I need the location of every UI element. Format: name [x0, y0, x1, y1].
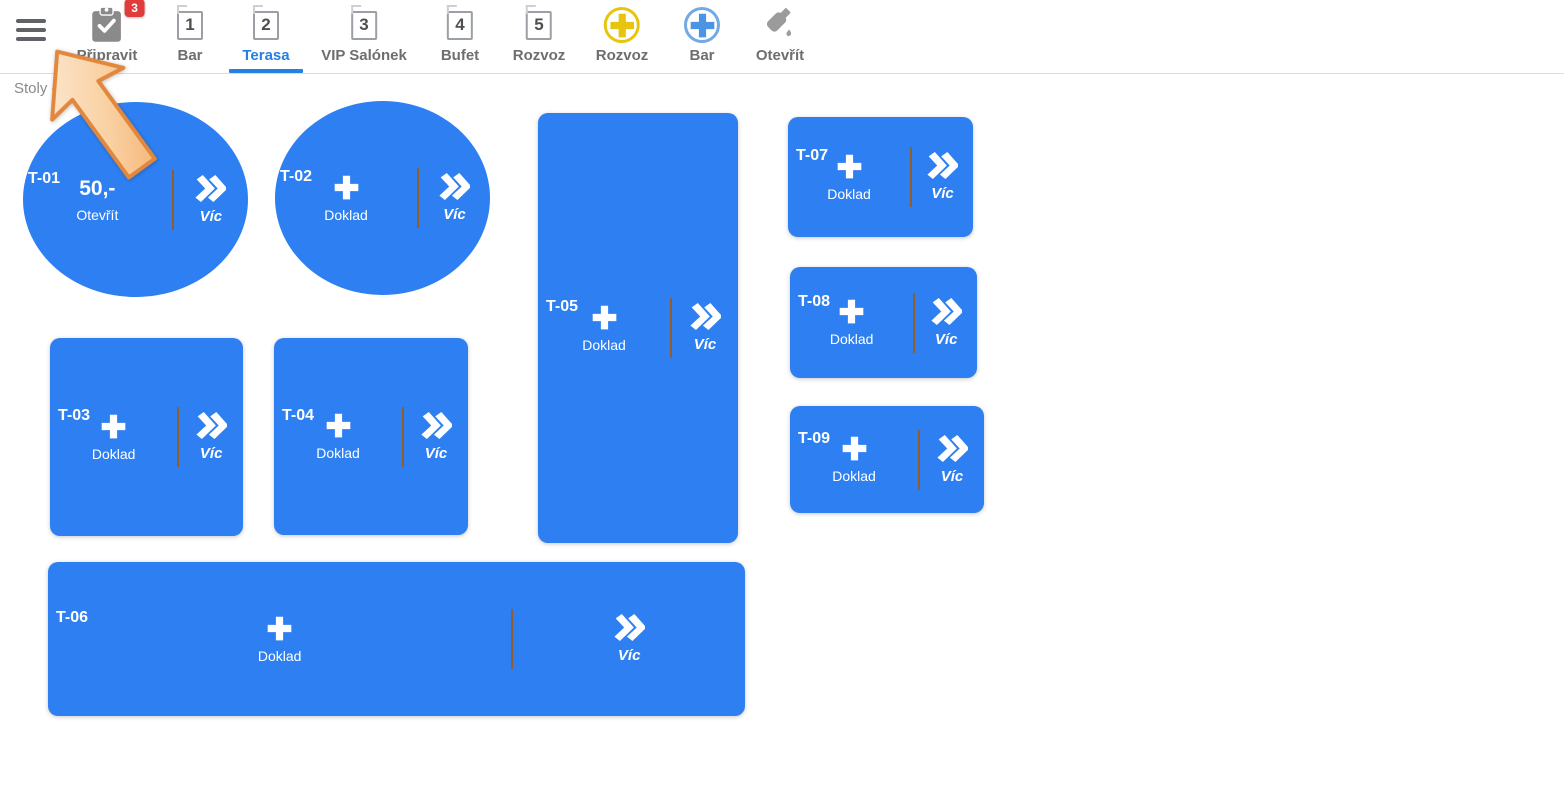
table-more-button[interactable]: Víc: [179, 338, 243, 536]
table-more-button[interactable]: Víc: [672, 113, 738, 543]
doklad-label: Doklad: [258, 648, 302, 664]
doklad-label: Doklad: [316, 445, 360, 461]
toolbar-divider: [0, 73, 1564, 74]
table-label: T-03: [58, 407, 90, 425]
active-tab-underline: [229, 69, 303, 73]
double-chevron-icon: [421, 412, 452, 439]
toolbar-item-otevrit[interactable]: Otevřít: [756, 6, 804, 64]
plus-icon: [841, 435, 868, 462]
table-tile-t08[interactable]: T-08 Doklad Víc: [790, 267, 977, 378]
toolbar-label: Rozvoz: [513, 47, 566, 64]
table-open-button[interactable]: 50,- Otevřít: [23, 102, 172, 297]
table-amount: 50,-: [79, 177, 115, 201]
table-add-doklad-button[interactable]: Doklad: [790, 406, 918, 513]
double-chevron-icon: [927, 152, 958, 179]
plus-icon: [836, 153, 863, 180]
double-chevron-icon: [196, 412, 227, 439]
toolbar-label: Bar: [689, 47, 714, 64]
table-label: T-05: [546, 298, 578, 316]
table-add-doklad-button[interactable]: Doklad: [50, 338, 177, 536]
numbered-square-icon: 5: [526, 11, 552, 40]
table-more-button[interactable]: Víc: [915, 267, 977, 378]
double-chevron-icon: [690, 303, 721, 330]
clipboard-check-icon: [89, 6, 125, 44]
numbered-square-icon: 1: [177, 11, 203, 40]
table-tile-t01[interactable]: T-01 50,- Otevřít Víc: [23, 102, 248, 297]
bottle-open-icon: [761, 6, 799, 44]
table-add-doklad-button[interactable]: Doklad: [538, 113, 670, 543]
toolbar-item-terasa[interactable]: 2 Terasa: [229, 6, 303, 73]
table-tile-t03[interactable]: T-03 Doklad Víc: [50, 338, 243, 536]
numbered-square-icon: 2: [253, 11, 279, 40]
toolbar-label: Terasa: [242, 47, 289, 64]
table-label: T-08: [798, 293, 830, 311]
table-label: T-02: [280, 168, 312, 186]
plus-icon: [266, 615, 293, 642]
plus-icon: [333, 174, 360, 201]
toolbar-item-add-rozvoz[interactable]: Rozvoz: [596, 6, 649, 64]
table-tile-t06[interactable]: T-06 Doklad Víc: [48, 562, 745, 716]
double-chevron-icon: [937, 435, 968, 462]
toolbar-label: VIP Salónek: [321, 47, 407, 64]
table-tile-t07[interactable]: T-07 Doklad Víc: [788, 117, 973, 237]
table-more-button[interactable]: Víc: [513, 562, 745, 716]
table-label: T-04: [282, 407, 314, 425]
open-label: Otevřít: [76, 207, 118, 223]
doklad-label: Doklad: [582, 337, 626, 353]
vic-label: Víc: [200, 445, 223, 462]
numbered-square-icon: 4: [447, 11, 473, 40]
breadcrumb: Stoly - Terasa: [14, 80, 105, 97]
plus-icon: [591, 304, 618, 331]
table-tile-t04[interactable]: T-04 Doklad Víc: [274, 338, 468, 535]
doklad-label: Doklad: [92, 446, 136, 462]
doklad-label: Doklad: [827, 186, 871, 202]
table-label: T-07: [796, 147, 828, 165]
table-label: T-01: [28, 170, 60, 188]
table-add-doklad-button[interactable]: Doklad: [274, 338, 402, 535]
table-tile-t02[interactable]: T-02 Doklad Víc: [275, 101, 490, 295]
table-more-button[interactable]: Víc: [920, 406, 984, 513]
plus-icon: [325, 412, 352, 439]
plus-circle-icon: [684, 7, 720, 43]
toolbar-item-pripravit[interactable]: 3 Připravit: [77, 6, 138, 64]
toolbar-item-rozvoz-5[interactable]: 5 Rozvoz: [513, 6, 566, 64]
table-tile-t05[interactable]: T-05 Doklad Víc: [538, 113, 738, 543]
numbered-square-icon: 3: [351, 11, 377, 40]
double-chevron-icon: [614, 614, 645, 641]
table-more-button[interactable]: Víc: [404, 338, 468, 535]
table-add-doklad-button[interactable]: Doklad: [790, 267, 913, 378]
doklad-label: Doklad: [830, 331, 874, 347]
vic-label: Víc: [931, 185, 954, 202]
toolbar-item-bar-1[interactable]: 1 Bar: [177, 6, 203, 64]
double-chevron-icon: [195, 175, 226, 202]
toolbar-item-vip-salonek[interactable]: 3 VIP Salónek: [321, 6, 407, 64]
vic-label: Víc: [618, 647, 641, 664]
table-tile-t09[interactable]: T-09 Doklad Víc: [790, 406, 984, 513]
doklad-label: Doklad: [324, 207, 368, 223]
toolbar-label: Připravit: [77, 47, 138, 64]
table-add-doklad-button[interactable]: Doklad: [275, 101, 417, 295]
vic-label: Víc: [425, 445, 448, 462]
toolbar-item-add-bar[interactable]: Bar: [684, 6, 720, 64]
table-label: T-06: [56, 609, 88, 627]
table-add-doklad-button[interactable]: Doklad: [788, 117, 910, 237]
table-more-button[interactable]: Víc: [912, 117, 973, 237]
plus-icon: [100, 413, 127, 440]
vic-label: Víc: [935, 331, 958, 348]
vic-label: Víc: [200, 208, 223, 225]
table-label: T-09: [798, 430, 830, 448]
plus-circle-icon: [604, 7, 640, 43]
vic-label: Víc: [941, 468, 964, 485]
top-toolbar: 3 Připravit 1 Bar 2 Terasa 3 VIP Salónek…: [0, 0, 1564, 73]
toolbar-label: Rozvoz: [596, 47, 649, 64]
plus-icon: [838, 298, 865, 325]
doklad-label: Doklad: [832, 468, 876, 484]
vic-label: Víc: [443, 206, 466, 223]
table-more-button[interactable]: Víc: [174, 102, 248, 297]
toolbar-label: Bar: [177, 47, 202, 64]
menu-hamburger-icon[interactable]: [16, 19, 46, 46]
vic-label: Víc: [694, 336, 717, 353]
pos-tables-screen: 3 Připravit 1 Bar 2 Terasa 3 VIP Salónek…: [0, 0, 1564, 798]
toolbar-item-bufet[interactable]: 4 Bufet: [441, 6, 479, 64]
table-add-doklad-button[interactable]: Doklad: [48, 562, 511, 716]
notification-badge: 3: [124, 0, 145, 17]
toolbar-label: Otevřít: [756, 47, 804, 64]
double-chevron-icon: [439, 173, 470, 200]
double-chevron-icon: [931, 298, 962, 325]
table-more-button[interactable]: Víc: [419, 101, 490, 295]
toolbar-label: Bufet: [441, 47, 479, 64]
